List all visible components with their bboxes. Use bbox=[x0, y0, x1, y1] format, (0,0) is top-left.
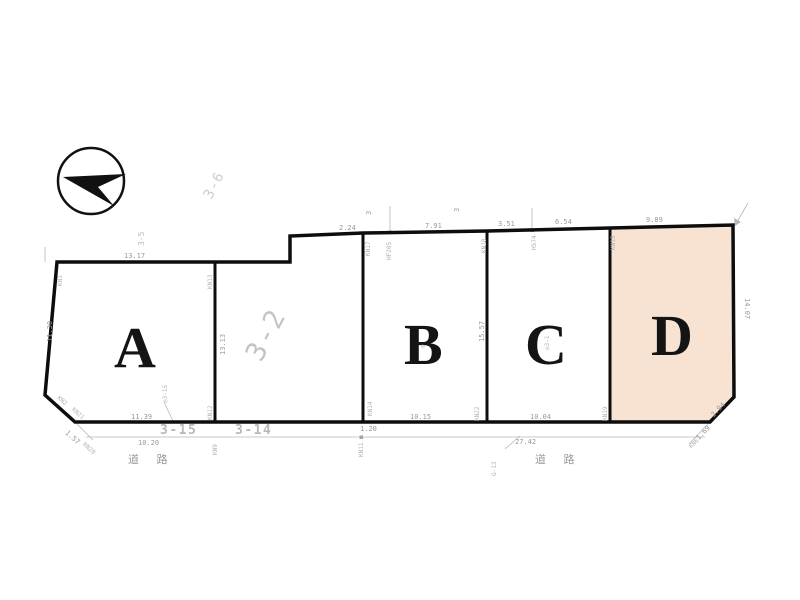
dim-c-bottom: 10.04 bbox=[530, 413, 551, 421]
middle-lot-number: 3-2 bbox=[240, 303, 293, 366]
point-hf205: HF205 bbox=[386, 242, 393, 260]
road-lot-3-15: 3-15 bbox=[160, 423, 197, 438]
site-plan-drawing: A B C D 3-2 3-6 3-5 3 3 3-15 3-14 ◎3-15 … bbox=[0, 0, 800, 600]
point-kn12: KN12 bbox=[207, 405, 214, 420]
lot-stamp-c: ◎3-1 bbox=[544, 335, 551, 350]
point-kn22: KN22 bbox=[474, 406, 481, 421]
point-kn14: KN14 bbox=[367, 401, 374, 416]
site-plan-canvas: A B C D 3-2 3-6 3-5 3 3 3-15 3-14 ◎3-15 … bbox=[0, 0, 800, 600]
point-h574: H574 bbox=[531, 235, 538, 250]
road-label-left: 道 路 bbox=[128, 452, 175, 466]
neighbor-lot-3-6: 3-6 bbox=[201, 169, 228, 201]
point-kn20: KN20 bbox=[81, 441, 97, 456]
dim-road-total: 27.42 bbox=[515, 438, 536, 446]
dim-d-top: 9.89 bbox=[646, 216, 663, 224]
leader-stamp-a bbox=[164, 402, 173, 421]
point-kn13: KN13 bbox=[207, 274, 214, 289]
dim-segment-small: 1.20 bbox=[360, 425, 377, 433]
point-kn17: KN17 bbox=[365, 241, 372, 256]
dim-bc-boundary: 15.57 bbox=[478, 321, 486, 342]
dim-c-top-1: 3.51 bbox=[498, 220, 515, 228]
north-compass bbox=[58, 148, 126, 214]
corner-leader-arrowhead bbox=[734, 218, 741, 226]
neighbor-lot-top-c: 3 bbox=[453, 208, 461, 212]
dim-b-top-2: 7.91 bbox=[425, 222, 442, 230]
dim-a-left: 11.30 bbox=[46, 321, 54, 342]
dim-a-chamfer-below: 1.57 bbox=[63, 429, 81, 446]
parcel-d-label: D bbox=[651, 303, 693, 368]
neighbor-lot-3-5: 3-5 bbox=[137, 231, 146, 246]
dim-b-top-1: 2.24 bbox=[339, 224, 356, 232]
point-kn9: KN9 bbox=[212, 444, 219, 455]
dim-ab-boundary: 13.13 bbox=[219, 334, 227, 355]
road-lot-3-14: 3-14 bbox=[235, 423, 272, 438]
point-kn19: KN19 bbox=[602, 406, 609, 421]
point-kn15: KN15 bbox=[610, 235, 617, 250]
dim-a-bottom: 11.39 bbox=[131, 413, 152, 421]
dim-c-top-2: 6.54 bbox=[555, 218, 572, 226]
lot-stamp-b: ◎ bbox=[421, 343, 425, 350]
point-kn11: KN11 bbox=[358, 442, 365, 457]
point-g13: G-13 bbox=[491, 461, 498, 476]
lot-stamp-a: ◎3-15 bbox=[162, 385, 169, 403]
point-kn18: KN18 bbox=[481, 238, 488, 253]
neighbor-lot-top-b: 3 bbox=[365, 211, 373, 215]
marker-kn11 bbox=[360, 436, 364, 440]
dim-b-bottom: 10.15 bbox=[410, 413, 431, 421]
point-kn1: KN1 bbox=[57, 275, 64, 286]
dim-road-left: 10.20 bbox=[138, 439, 159, 447]
road-label-right: 道 路 bbox=[535, 452, 582, 466]
parcel-a-label: A bbox=[114, 315, 156, 380]
corner-leader-line bbox=[737, 203, 748, 222]
dim-a-top: 13.17 bbox=[124, 252, 145, 260]
dim-d-right: 14.07 bbox=[743, 298, 751, 319]
